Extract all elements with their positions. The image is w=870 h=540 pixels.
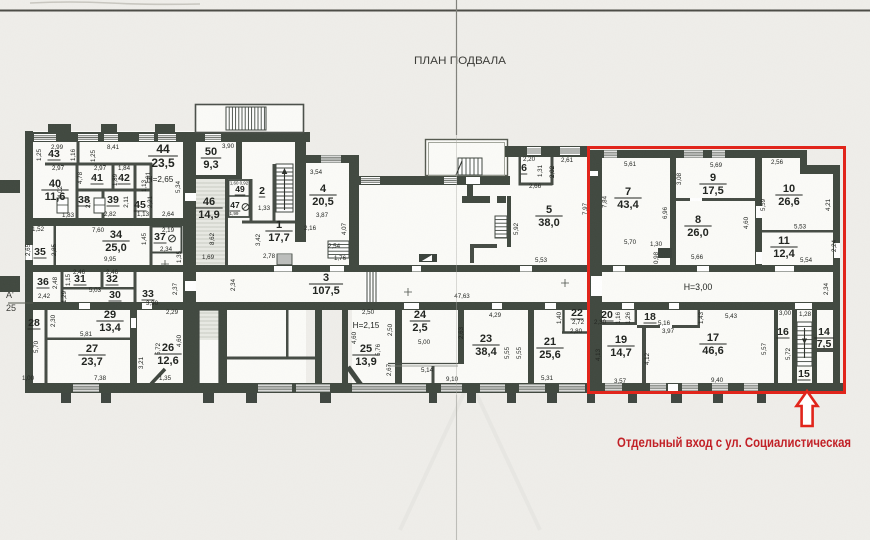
svg-text:Отдельный вход с ул. Социалист: Отдельный вход с ул. Социалистическая — [617, 435, 851, 450]
